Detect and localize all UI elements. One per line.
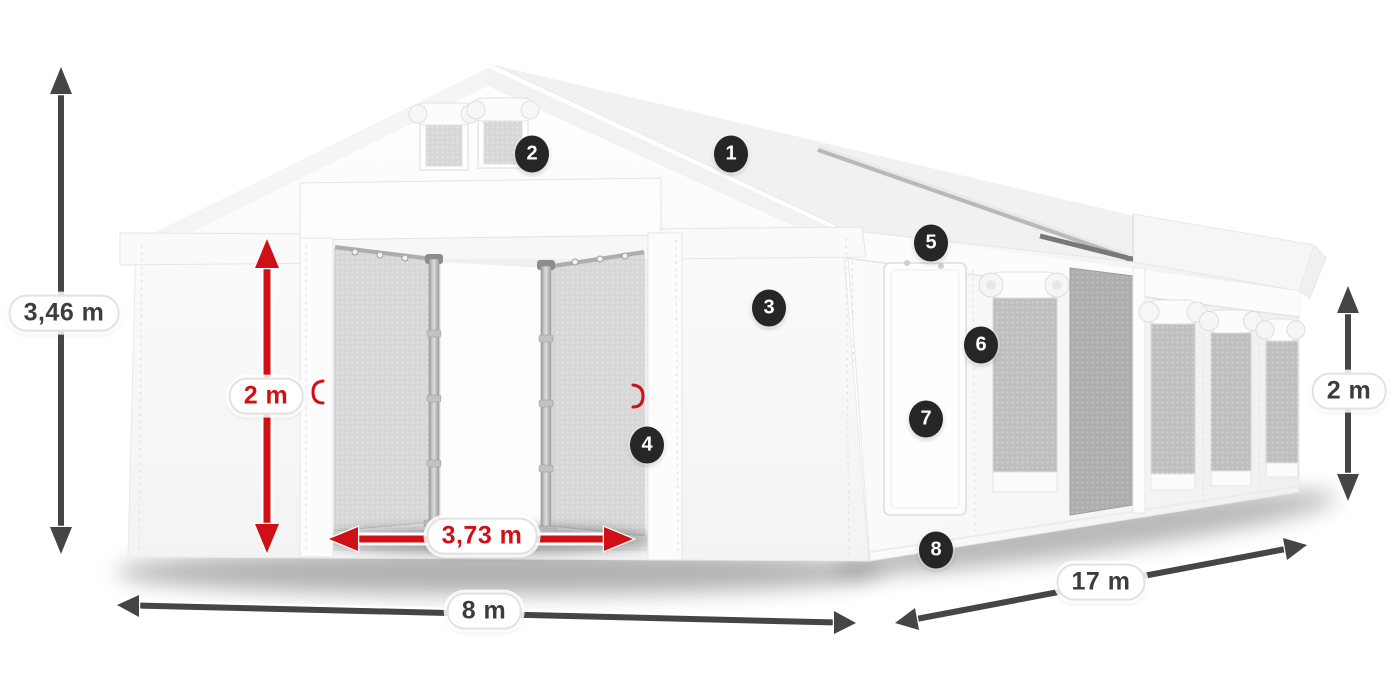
feature-marker-3[interactable]: 3 xyxy=(752,290,786,327)
feature-marker-6[interactable]: 6 xyxy=(964,327,998,364)
dimension-label-door-height: 2 m xyxy=(229,378,304,415)
dimension-label-front-width: 8 m xyxy=(447,593,522,630)
feature-marker-4[interactable]: 4 xyxy=(630,427,664,464)
feature-marker-7[interactable]: 7 xyxy=(909,401,943,438)
feature-marker-5[interactable]: 5 xyxy=(914,225,948,262)
feature-marker-8[interactable]: 8 xyxy=(919,532,953,569)
dimension-label-total-height: 3,46 m xyxy=(9,295,120,332)
tent-illustration xyxy=(0,0,1400,700)
side-door xyxy=(884,260,966,515)
dimension-label-length: 17 m xyxy=(1057,564,1146,601)
tent-dimension-diagram: 3,46 m 2 m 3,73 m 8 m 17 m 2 m 1 2 3 4 5… xyxy=(0,0,1400,700)
feature-marker-1[interactable]: 1 xyxy=(714,136,748,173)
front-door-opening xyxy=(325,235,655,553)
dimension-label-door-width: 3,73 m xyxy=(427,518,538,555)
dimension-label-side-height: 2 m xyxy=(1312,373,1387,410)
side-window-1 xyxy=(979,272,1069,492)
open-mesh-bay xyxy=(1070,268,1133,515)
feature-marker-2[interactable]: 2 xyxy=(515,136,549,173)
